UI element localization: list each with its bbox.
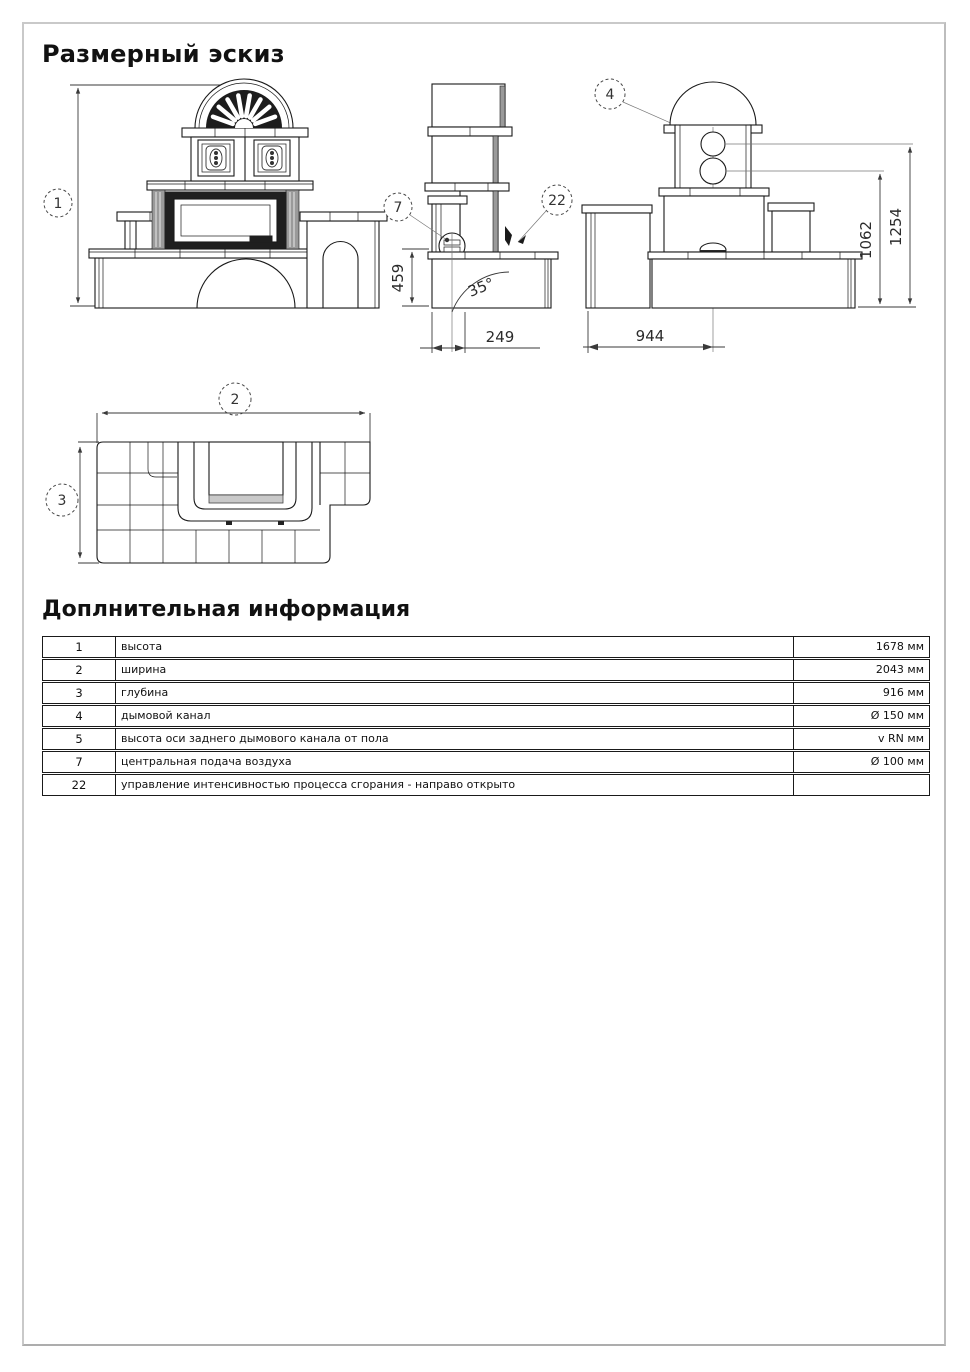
svg-text:2: 2	[231, 392, 240, 408]
row-value: v RN мм	[793, 729, 929, 749]
row-description: высота оси заднего дымового канала от по…	[115, 729, 793, 749]
row-value: 916 мм	[793, 683, 929, 703]
side-view-drawing: 7 22 459 35° 249	[384, 84, 572, 353]
dim-rear-width: 944	[636, 327, 665, 345]
row-description: центральная подача воздуха	[115, 752, 793, 772]
row-number: 3	[43, 683, 115, 703]
info-table: 1 высота 1678 мм 2 ширина 2043 мм 3 глуб…	[42, 636, 930, 797]
row-value: 2043 мм	[793, 660, 929, 680]
row-value: Ø 150 мм	[793, 706, 929, 726]
svg-text:4: 4	[606, 87, 615, 103]
top-view-drawing: 2 3	[46, 383, 370, 563]
row-number: 1	[43, 637, 115, 657]
row-description: управление интенсивностью процесса сгора…	[115, 775, 793, 795]
info-section-title: Доплнительная информация	[42, 597, 410, 622]
dim-axis-lower: 1062	[857, 221, 875, 259]
smoke-channel-upper	[701, 132, 725, 156]
table-row: 2 ширина 2043 мм	[42, 659, 930, 681]
table-row: 7 центральная подача воздуха Ø 100 мм	[42, 751, 930, 773]
svg-text:7: 7	[394, 200, 403, 216]
row-value: 1678 мм	[793, 637, 929, 657]
crown-arch-ornament	[195, 79, 293, 128]
row-description: высота	[115, 637, 793, 657]
smoke-channel-lower	[700, 158, 726, 184]
svg-text:3: 3	[58, 493, 67, 509]
table-row: 5 высота оси заднего дымового канала от …	[42, 728, 930, 750]
row-number: 4	[43, 706, 115, 726]
dim-front-depth: 249	[486, 328, 515, 346]
row-number: 22	[43, 775, 115, 795]
damper-lever	[505, 226, 512, 246]
front-view-drawing: 1	[44, 79, 387, 308]
row-number: 2	[43, 660, 115, 680]
rear-view-drawing: 4	[582, 79, 916, 353]
table-row: 22 управление интенсивностью процесса сг…	[42, 774, 930, 796]
table-row: 4 дымовой канал Ø 150 мм	[42, 705, 930, 727]
row-value: Ø 100 мм	[793, 752, 929, 772]
row-description: дымовой канал	[115, 706, 793, 726]
dim-axis-upper: 1254	[887, 208, 905, 246]
table-row: 3 глубина 916 мм	[42, 682, 930, 704]
row-description: глубина	[115, 683, 793, 703]
svg-text:22: 22	[548, 193, 566, 209]
row-value	[793, 775, 929, 795]
document-page: Размерный эскиз 1	[0, 0, 970, 1372]
row-description: ширина	[115, 660, 793, 680]
dimensional-sketch: 1	[0, 0, 970, 600]
table-row: 1 высота 1678 мм	[42, 636, 930, 658]
row-number: 5	[43, 729, 115, 749]
row-number: 7	[43, 752, 115, 772]
dim-bench-height: 459	[389, 264, 407, 293]
svg-text:1: 1	[54, 196, 63, 212]
